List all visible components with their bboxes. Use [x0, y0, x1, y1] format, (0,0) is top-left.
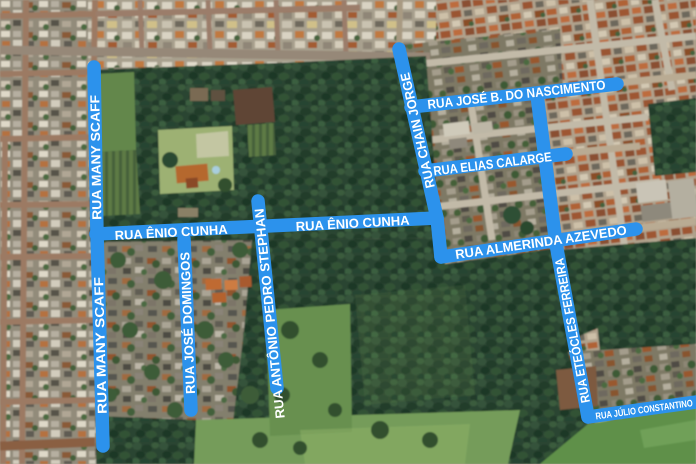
- svg-text:RUA MANY SCAFF: RUA MANY SCAFF: [87, 95, 104, 220]
